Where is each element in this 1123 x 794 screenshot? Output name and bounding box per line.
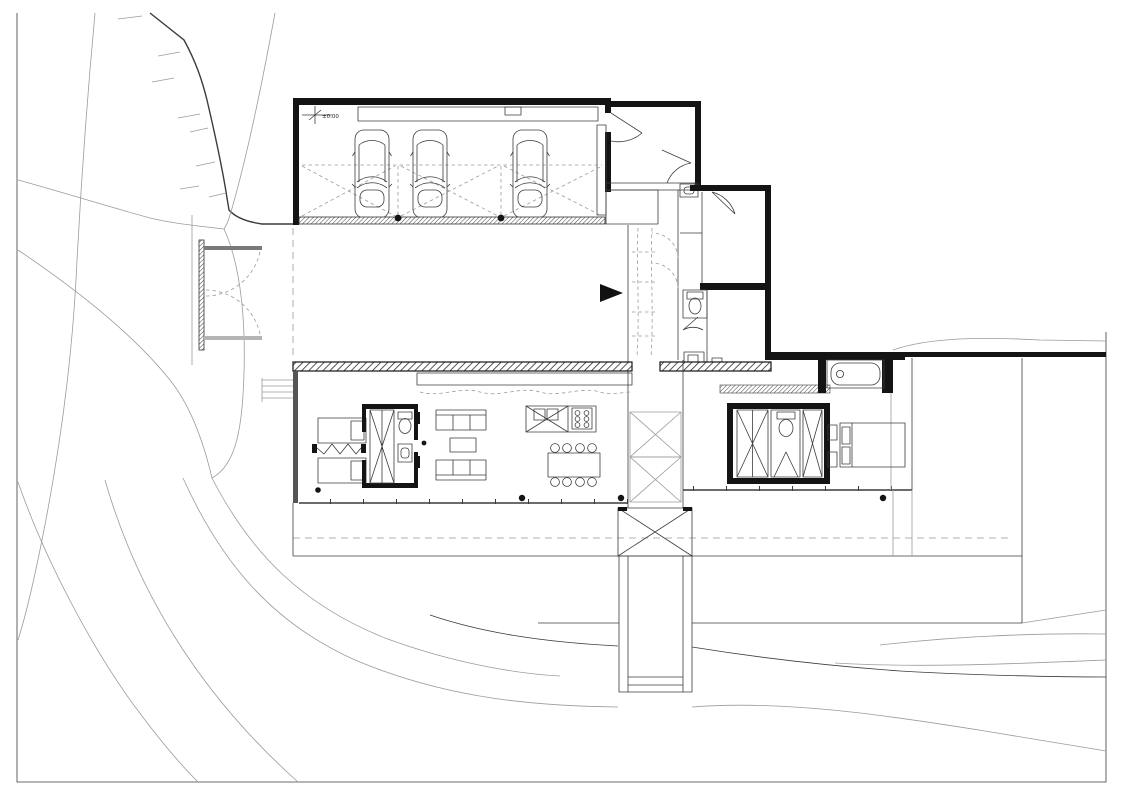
storage-shelf	[597, 125, 606, 215]
car-icon	[352, 130, 392, 218]
bedroom-wing	[720, 358, 905, 501]
door-swing	[712, 192, 735, 214]
toilet	[398, 412, 412, 434]
shower-closet	[370, 410, 394, 483]
car-icon	[410, 130, 450, 218]
site-wall	[905, 352, 1106, 357]
west-wall	[293, 371, 298, 503]
bathtub	[818, 358, 893, 393]
bed-single	[318, 458, 366, 483]
coffee-table	[450, 438, 476, 452]
dining-chair	[576, 478, 585, 487]
column	[315, 487, 321, 493]
dining-chair	[588, 478, 597, 487]
north-wall	[293, 362, 632, 371]
site-contours	[17, 13, 1106, 782]
parking-bay-markings	[302, 165, 602, 216]
level-marker-label: ±0.00	[322, 114, 339, 120]
cabinet-row	[417, 373, 632, 385]
dining-chair	[588, 444, 597, 453]
sofa	[436, 410, 486, 430]
car-icon	[510, 130, 550, 218]
counter	[606, 190, 658, 224]
level-marker-icon: ±0.00	[302, 106, 339, 124]
dining-chair	[563, 444, 572, 453]
dining-chair	[551, 478, 560, 487]
niche	[414, 412, 420, 424]
living-wing	[262, 352, 1106, 508]
column	[880, 495, 886, 501]
dining-chair	[576, 444, 585, 453]
dining-chair	[551, 444, 560, 453]
kitchen-island	[526, 406, 596, 432]
door-swing	[611, 113, 642, 142]
column	[498, 215, 505, 222]
dining-chair	[563, 478, 572, 487]
floor-plan-sheet: ±0.00	[0, 0, 1123, 794]
wardrobe-row	[720, 385, 830, 393]
column	[422, 441, 427, 446]
garage-door-line	[299, 217, 605, 224]
stairs	[618, 507, 692, 556]
folding-partition	[312, 444, 366, 454]
door-swing	[662, 150, 691, 183]
driveway-gate	[192, 215, 293, 365]
entrance-walkway	[600, 225, 658, 362]
door-swing	[652, 233, 678, 288]
gate-leaf	[204, 336, 262, 340]
site-wall-line	[150, 13, 293, 224]
gate-post-wall	[199, 240, 204, 350]
bed-double	[840, 423, 905, 467]
wc	[683, 290, 707, 330]
drawing-frame	[17, 13, 1106, 782]
door-swing	[683, 317, 703, 330]
bed-single	[318, 418, 366, 443]
north-wall	[660, 362, 771, 371]
curtain-line	[420, 390, 630, 394]
column	[519, 495, 525, 501]
dining-table	[548, 444, 600, 487]
floor-plan-drawing: ±0.00	[0, 0, 1123, 794]
exterior-steps	[262, 378, 293, 402]
pier-deck	[619, 556, 692, 692]
folding-door	[774, 452, 798, 477]
right-wing	[652, 185, 771, 368]
sink	[398, 444, 412, 462]
entry-hall	[606, 107, 701, 224]
cooktop	[572, 408, 592, 429]
hall-deck	[630, 412, 681, 502]
wc	[771, 410, 800, 477]
bathroom-core	[362, 404, 426, 488]
entrance-arrow-icon	[600, 284, 623, 302]
bedroom-core	[727, 403, 837, 484]
wardrobe	[803, 410, 822, 477]
gate-leaf	[204, 246, 262, 250]
wardrobe	[737, 410, 768, 477]
sofa	[436, 460, 486, 480]
niche	[414, 456, 420, 468]
storage-shelf	[358, 107, 598, 121]
garage: ±0.00	[293, 98, 701, 225]
column	[395, 215, 402, 222]
column	[618, 495, 624, 501]
pier	[618, 507, 692, 692]
terrace	[293, 358, 1022, 623]
